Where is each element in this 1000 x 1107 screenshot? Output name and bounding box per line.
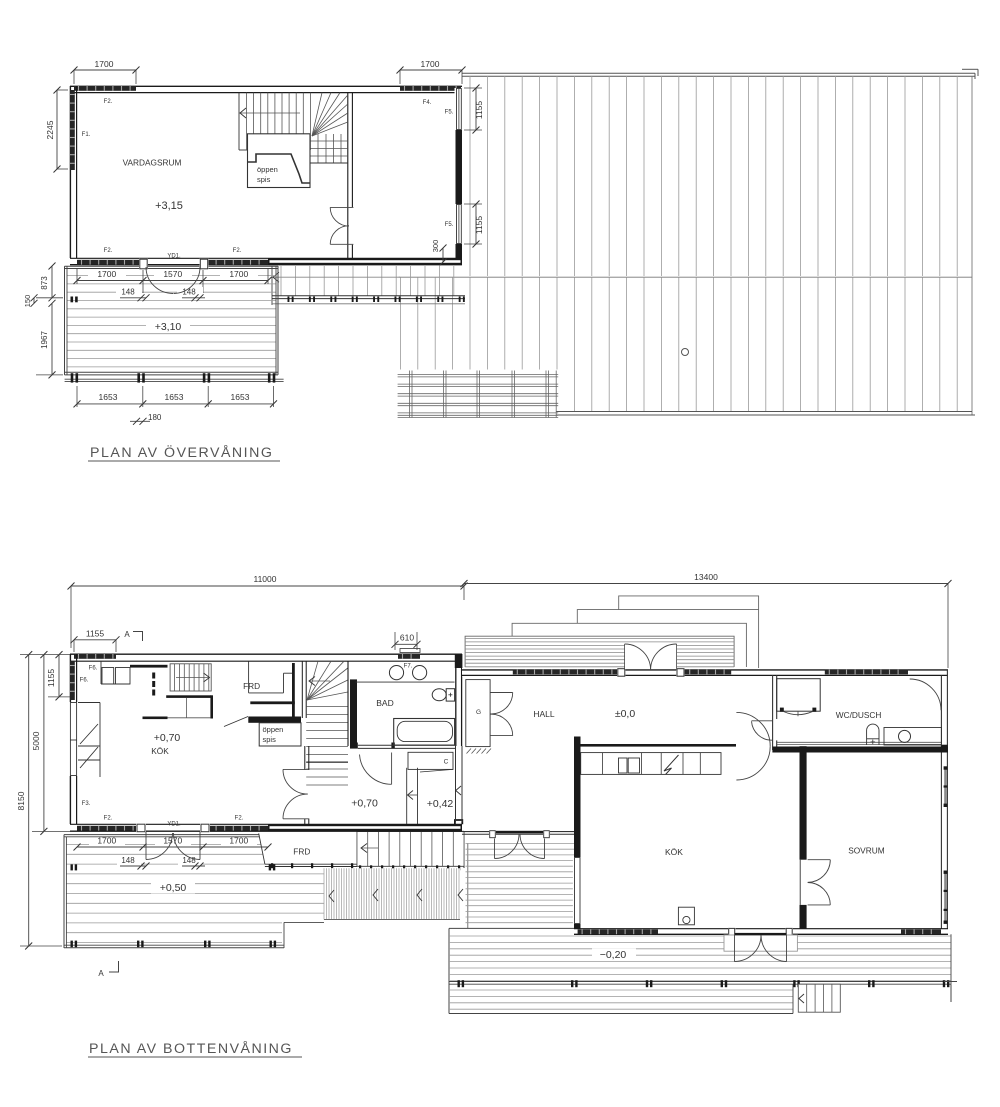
svg-text:WC/DUSCH: WC/DUSCH xyxy=(836,710,882,720)
svg-text:KÖK: KÖK xyxy=(665,847,683,857)
svg-text:F4.: F4. xyxy=(423,100,432,106)
svg-text:F5.: F5. xyxy=(445,222,454,228)
svg-text:+0,70: +0,70 xyxy=(351,798,378,810)
svg-text:F6.: F6. xyxy=(80,678,89,684)
svg-text:8150: 8150 xyxy=(16,791,26,810)
svg-text:VARDAGSRUM: VARDAGSRUM xyxy=(123,158,182,168)
svg-text:spis: spis xyxy=(263,735,277,744)
svg-text:F2.: F2. xyxy=(104,816,113,822)
svg-text:F5.: F5. xyxy=(445,110,454,116)
svg-text:11000: 11000 xyxy=(253,574,276,584)
svg-text:1653: 1653 xyxy=(99,392,118,402)
svg-text:5000: 5000 xyxy=(31,731,41,750)
svg-text:F2.: F2. xyxy=(104,99,113,105)
svg-text:PLAN AV BOTTENVÅNING: PLAN AV BOTTENVÅNING xyxy=(89,1040,293,1057)
svg-text:148: 148 xyxy=(121,856,135,865)
svg-text:1700: 1700 xyxy=(229,269,248,279)
svg-text:1700: 1700 xyxy=(229,836,248,846)
svg-text:BAD: BAD xyxy=(376,698,393,708)
svg-text:610: 610 xyxy=(400,633,414,643)
svg-text:F6.: F6. xyxy=(89,666,98,672)
svg-text:1967: 1967 xyxy=(40,331,49,349)
svg-text:1155: 1155 xyxy=(474,216,484,235)
svg-text:+0,50: +0,50 xyxy=(160,882,187,894)
svg-text:+0,42: +0,42 xyxy=(427,798,454,810)
svg-text:YD1.: YD1. xyxy=(167,254,181,260)
svg-text:HALL: HALL xyxy=(533,709,555,719)
svg-text:1700: 1700 xyxy=(421,59,440,69)
svg-text:F2.: F2. xyxy=(104,248,113,254)
svg-text:öppen: öppen xyxy=(263,725,284,734)
svg-text:1155: 1155 xyxy=(86,629,105,639)
svg-text:180: 180 xyxy=(148,413,162,422)
svg-text:A: A xyxy=(98,969,104,978)
svg-text:spis: spis xyxy=(257,175,271,184)
svg-text:1570: 1570 xyxy=(163,269,182,279)
svg-text:YD1.: YD1. xyxy=(167,822,181,828)
svg-text:±0,0: ±0,0 xyxy=(615,708,636,720)
svg-text:F1.: F1. xyxy=(82,132,91,138)
svg-text:150: 150 xyxy=(23,295,32,308)
svg-text:1653: 1653 xyxy=(231,392,250,402)
svg-text:FRD: FRD xyxy=(243,681,260,691)
svg-text:1570: 1570 xyxy=(163,836,182,846)
svg-text:1700: 1700 xyxy=(97,836,116,846)
svg-text:+3,15: +3,15 xyxy=(155,200,183,212)
svg-text:148: 148 xyxy=(121,288,135,297)
svg-text:KÖK: KÖK xyxy=(151,746,169,756)
svg-text:148: 148 xyxy=(182,288,196,297)
svg-text:öppen: öppen xyxy=(257,165,278,174)
svg-text:G: G xyxy=(476,709,481,716)
svg-text:1700: 1700 xyxy=(97,269,116,279)
svg-text:1155: 1155 xyxy=(474,101,484,120)
svg-text:PLAN AV ÖVERVÅNING: PLAN AV ÖVERVÅNING xyxy=(90,443,273,461)
svg-text:−0,20: −0,20 xyxy=(600,949,627,961)
svg-text:1155: 1155 xyxy=(46,669,56,688)
svg-text:13400: 13400 xyxy=(694,572,718,582)
svg-text:FRD: FRD xyxy=(293,847,310,857)
svg-text:1700: 1700 xyxy=(95,59,114,69)
svg-text:SOVRUM: SOVRUM xyxy=(848,846,885,856)
svg-text:300: 300 xyxy=(431,240,440,253)
svg-text:F7.: F7. xyxy=(404,664,413,670)
svg-text:873: 873 xyxy=(40,276,49,290)
svg-text:F3.: F3. xyxy=(82,801,91,807)
svg-text:F2.: F2. xyxy=(233,248,242,254)
svg-text:+0,70: +0,70 xyxy=(154,732,181,744)
svg-text:+3,10: +3,10 xyxy=(155,321,182,333)
svg-text:C: C xyxy=(444,759,449,766)
svg-text:A: A xyxy=(124,630,130,639)
svg-text:F2.: F2. xyxy=(235,816,244,822)
svg-text:2245: 2245 xyxy=(45,120,55,139)
svg-text:1653: 1653 xyxy=(165,392,184,402)
